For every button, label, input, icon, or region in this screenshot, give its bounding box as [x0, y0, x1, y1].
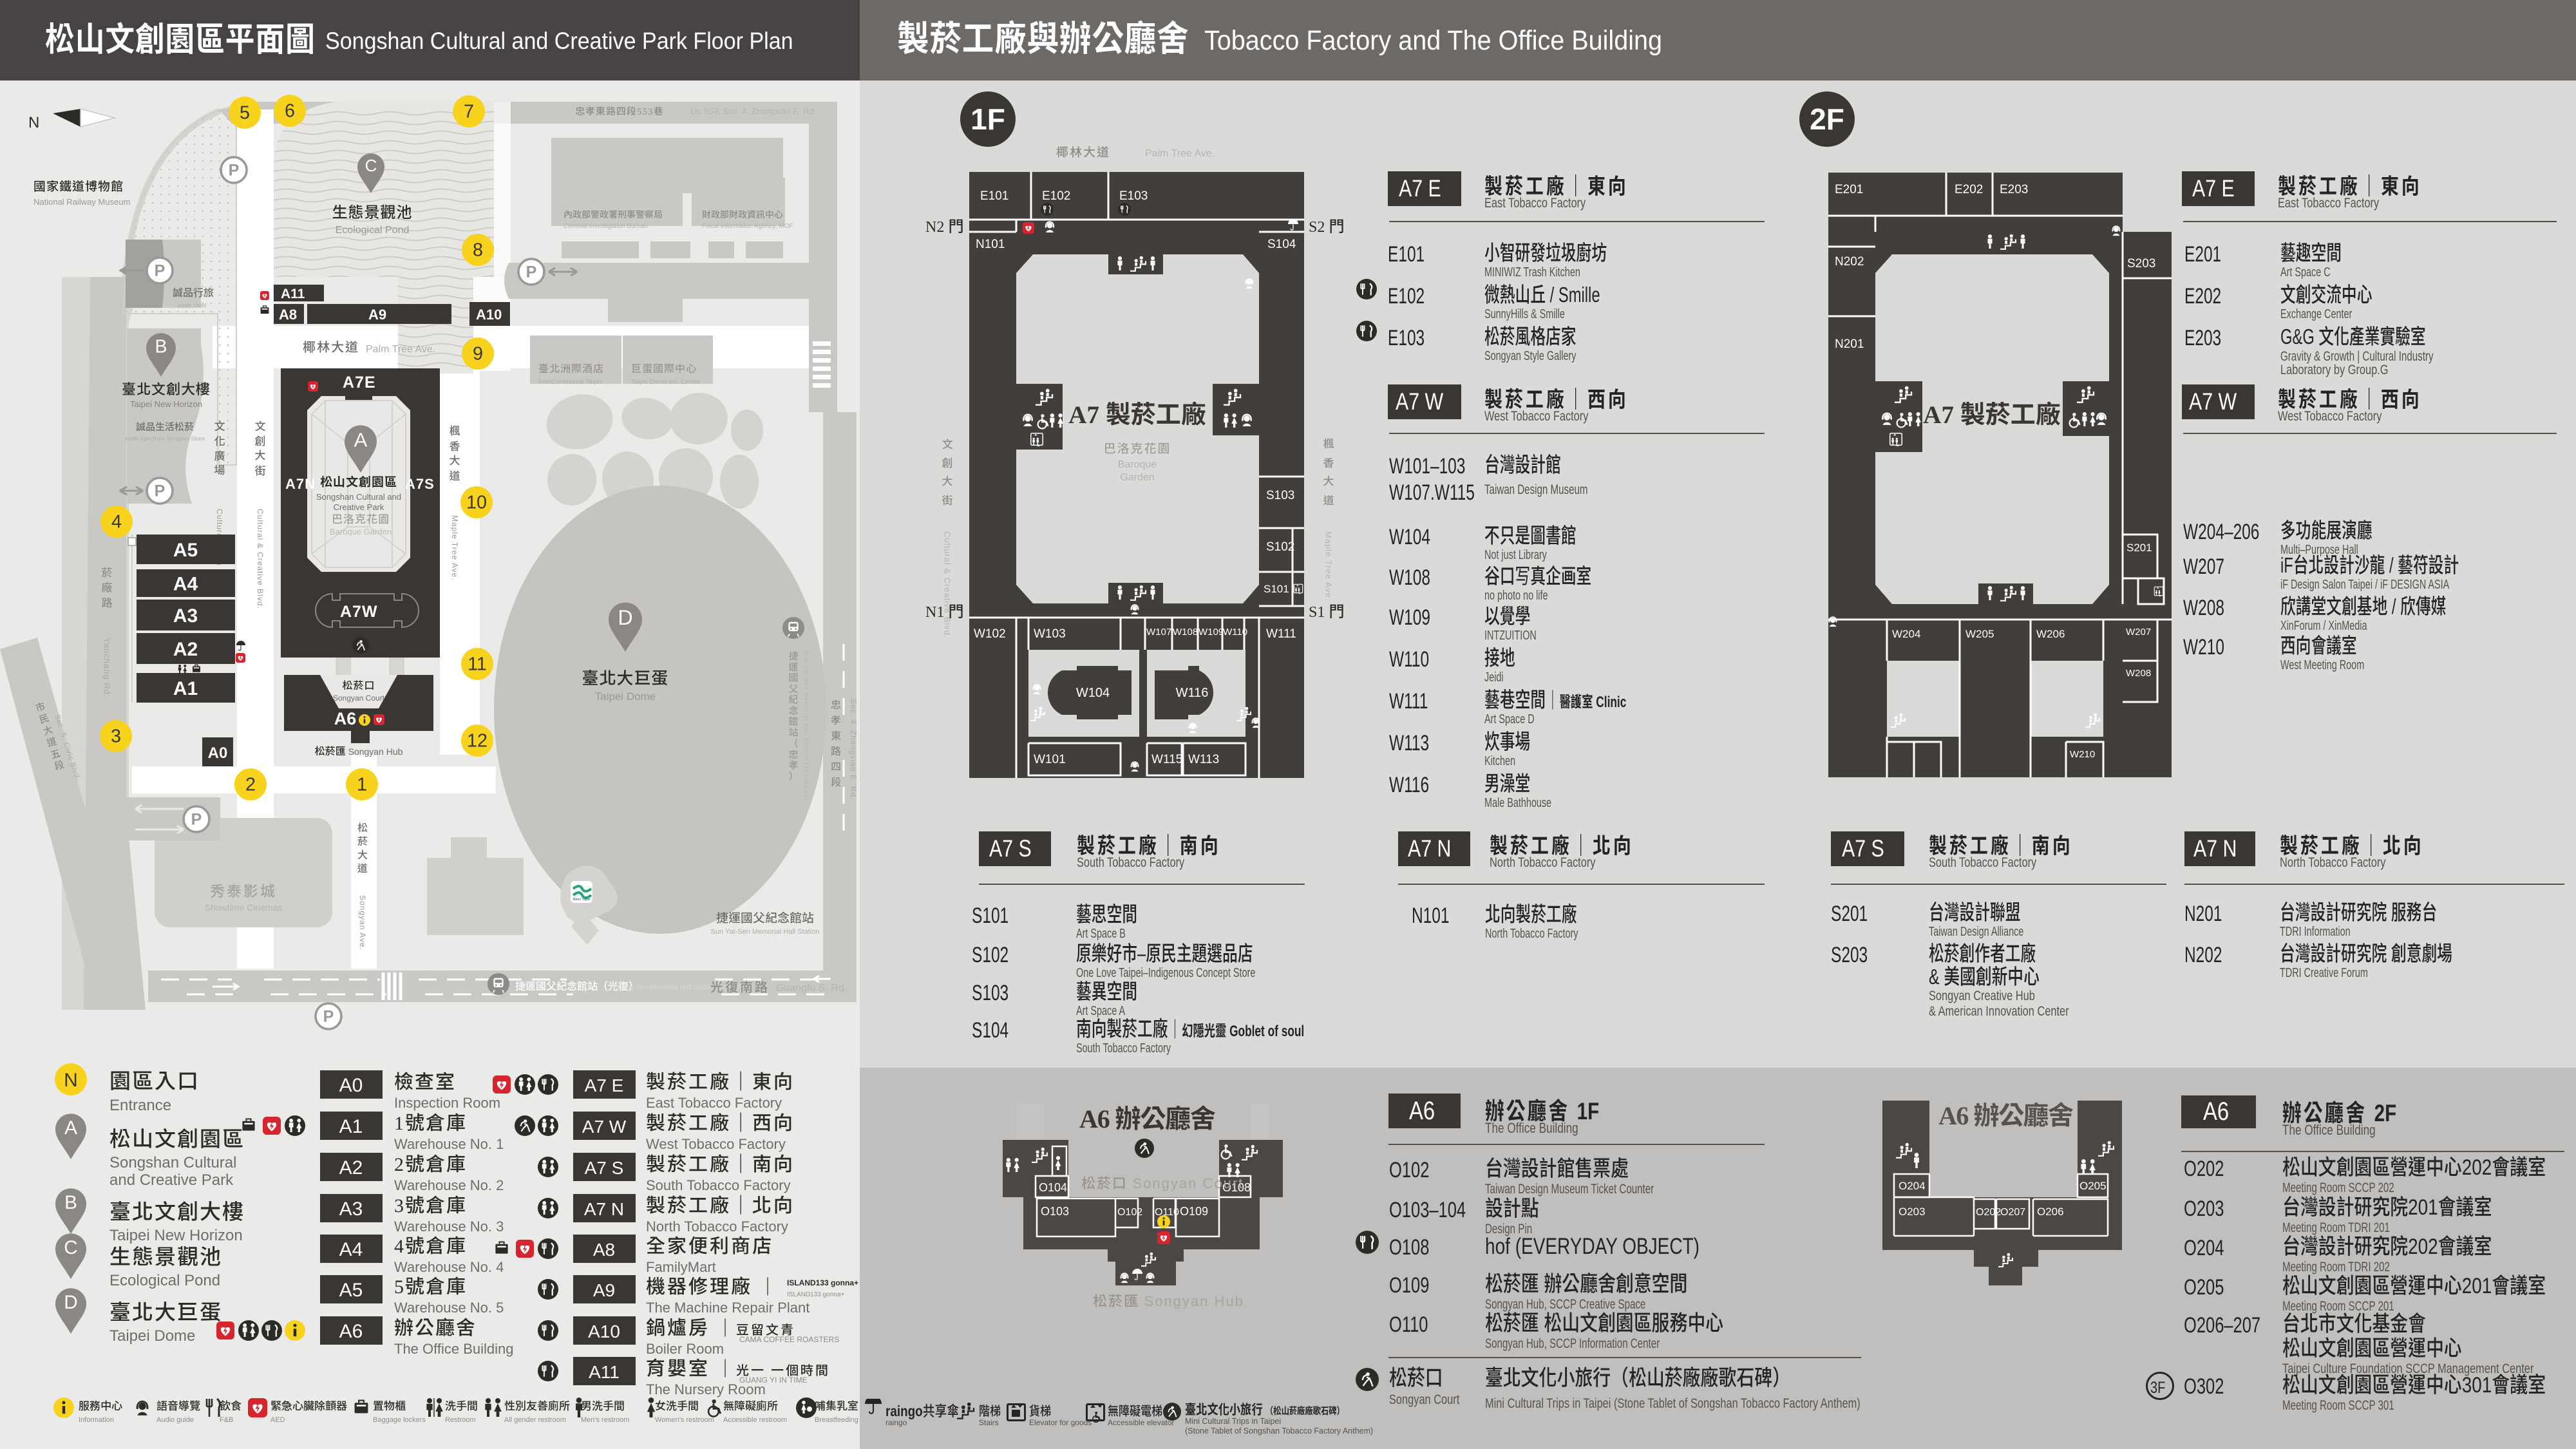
svg-text:Taipei New Horizon: Taipei New Horizon — [130, 399, 202, 409]
svg-text:N: N — [64, 1070, 78, 1091]
svg-text:W107: W107 — [1146, 627, 1171, 638]
svg-text:製菸工廠｜東向: 製菸工廠｜東向 — [646, 1066, 795, 1094]
svg-text:國家鐵道博物館: 國家鐵道博物館 — [33, 177, 124, 194]
svg-text:內政部警政署刑事警察局: 內政部警政署刑事警察局 — [563, 208, 663, 221]
svg-text:誠品行旅: 誠品行旅 — [173, 284, 214, 299]
svg-text:A1: A1 — [339, 1116, 363, 1137]
svg-text:P: P — [229, 161, 240, 179]
svg-text:洗手間: 洗手間 — [445, 1397, 478, 1413]
svg-text:Baggage lockers: Baggage lockers — [373, 1416, 426, 1424]
svg-text:A7N: A7N — [285, 476, 316, 492]
svg-text:辦公廳舍: 辦公廳舍 — [394, 1312, 477, 1340]
svg-text:A10: A10 — [476, 307, 502, 323]
svg-text:N: N — [28, 114, 39, 131]
svg-text:P: P — [155, 261, 166, 279]
svg-text:3: 3 — [111, 726, 121, 747]
svg-text:W113: W113 — [1188, 753, 1219, 766]
svg-text:N101: N101 — [976, 238, 1005, 251]
svg-text:ISLAND133 gonna+: ISLAND133 gonna+ — [787, 1278, 858, 1287]
svg-text:E103: E103 — [1119, 189, 1148, 203]
svg-text:S101: S101 — [1264, 583, 1289, 595]
svg-text:A2: A2 — [339, 1157, 363, 1179]
svg-text:Sun Yat-Sen Memorial Hall Stat: Sun Yat-Sen Memorial Hall Station — [711, 928, 820, 936]
svg-text:W207: W207 — [2126, 627, 2151, 638]
svg-text:A7 E: A7 E — [585, 1075, 624, 1095]
svg-text:松菸口: 松菸口 — [342, 677, 375, 692]
svg-text:A11: A11 — [589, 1362, 620, 1382]
svg-text:A1: A1 — [173, 678, 198, 699]
svg-text:E201: E201 — [1835, 183, 1863, 196]
svg-text:W102: W102 — [974, 627, 1006, 641]
svg-text:Women's restroom: Women's restroom — [655, 1416, 714, 1424]
svg-text:椰林大道: 椰林大道 — [1056, 143, 1110, 160]
svg-text:A2: A2 — [173, 639, 198, 660]
svg-text:製菸工廠｜北向: 製菸工廠｜北向 — [646, 1189, 795, 1218]
svg-text:5號倉庫: 5號倉庫 — [394, 1271, 467, 1299]
svg-text:12: 12 — [467, 731, 488, 752]
svg-text:Criminal Investigation Bureau: Criminal Investigation Bureau — [563, 223, 648, 230]
svg-text:Ecological Pond: Ecological Pond — [336, 225, 410, 236]
svg-text:A11: A11 — [281, 287, 305, 301]
svg-text:N201: N201 — [1835, 337, 1864, 351]
svg-text:Breastfeeding room: Breastfeeding room — [815, 1416, 860, 1424]
svg-text:Palm Tree Ave.: Palm Tree Ave. — [1145, 148, 1215, 159]
svg-text:N202: N202 — [1835, 255, 1864, 269]
svg-text:松菸大道: 松菸大道 — [355, 822, 370, 876]
svg-text:W108: W108 — [1173, 627, 1198, 638]
svg-text:Songyan Court: Songyan Court — [333, 694, 385, 703]
svg-text:哺集乳室: 哺集乳室 — [815, 1397, 858, 1413]
svg-text:機器修理廠 ｜: 機器修理廠 ｜ — [646, 1271, 779, 1299]
svg-text:The Nursery Room: The Nursery Room — [646, 1381, 766, 1397]
svg-text:Cultural & Creative Blvd.: Cultural & Creative Blvd. — [943, 531, 952, 639]
svg-text:A7 製菸工廠: A7 製菸工廠 — [1068, 395, 1206, 431]
svg-text:W206: W206 — [2036, 628, 2065, 640]
svg-text:O204: O204 — [1899, 1180, 1926, 1192]
svg-text:S1 門: S1 門 — [1309, 599, 1344, 621]
svg-text:Maple Tree Ave.: Maple Tree Ave. — [1324, 531, 1334, 601]
svg-text:A6: A6 — [339, 1321, 363, 1342]
svg-text:P: P — [155, 482, 166, 500]
svg-text:9: 9 — [473, 344, 483, 365]
svg-text:The Office Building: The Office Building — [394, 1341, 513, 1357]
svg-text:All gender restroom: All gender restroom — [504, 1416, 566, 1424]
svg-text:W103: W103 — [1034, 627, 1066, 641]
svg-text:eslite Spectrum Songyan Store: eslite Spectrum Songyan Store — [125, 435, 205, 442]
svg-text:Restroom: Restroom — [445, 1416, 476, 1424]
svg-text:Cultural & Creative Blvd.: Cultural & Creative Blvd. — [256, 509, 265, 609]
svg-text:National Railway Museum: National Railway Museum — [33, 197, 130, 207]
svg-text:Taipei Dome Intl. Center: Taipei Dome Intl. Center — [631, 379, 701, 386]
svg-text:F&B: F&B — [220, 1416, 233, 1424]
svg-text:松菸口 Songyan Court: 松菸口 Songyan Court — [1081, 1172, 1244, 1193]
svg-text:A0: A0 — [208, 744, 228, 762]
svg-text:緊急心臟除顫器: 緊急心臟除顫器 — [270, 1397, 347, 1413]
svg-text:Songshan Cultural: Songshan Cultural — [109, 1154, 236, 1171]
svg-text:4號倉庫: 4號倉庫 — [394, 1230, 467, 1258]
svg-text:A7 S: A7 S — [585, 1158, 624, 1178]
svg-text:Information: Information — [79, 1416, 114, 1424]
svg-text:園區入口: 園區入口 — [109, 1064, 200, 1095]
svg-text:文創大街: 文創大街 — [252, 420, 269, 479]
svg-text:菸廠路: 菸廠路 — [99, 567, 115, 611]
svg-text:性別友善廁所: 性別友善廁所 — [504, 1397, 570, 1413]
svg-text:2號倉庫: 2號倉庫 — [394, 1148, 467, 1177]
svg-text:臺北文創大樓: 臺北文創大樓 — [122, 378, 211, 399]
svg-text:Men's restroom: Men's restroom — [581, 1416, 629, 1424]
svg-text:A7W: A7W — [340, 603, 378, 621]
svg-text:1: 1 — [357, 775, 367, 795]
svg-text:E101: E101 — [980, 189, 1009, 203]
svg-text:文創大街: 文創大街 — [940, 438, 956, 513]
svg-text:2: 2 — [245, 775, 256, 795]
svg-text:O109: O109 — [1180, 1205, 1208, 1218]
svg-text:全家便利商店: 全家便利商店 — [646, 1230, 773, 1258]
svg-text:巨蛋國際中心: 巨蛋國際中心 — [631, 360, 697, 375]
svg-text:8: 8 — [473, 240, 483, 261]
svg-text:A7E: A7E — [343, 374, 376, 392]
svg-text:S203: S203 — [2127, 257, 2155, 270]
svg-text:捷運國父紀念館站: 捷運國父紀念館站 — [716, 909, 814, 926]
svg-text:N1 門: N1 門 — [925, 599, 963, 621]
svg-text:文化廣場: 文化廣場 — [212, 420, 228, 479]
svg-text:A3: A3 — [173, 605, 198, 627]
svg-text:Yanchang Rd.: Yanchang Rd. — [102, 638, 112, 697]
svg-text:Baroque: Baroque — [1118, 459, 1157, 470]
svg-text:A8: A8 — [593, 1240, 615, 1260]
svg-text:楓香大道: 楓香大道 — [1321, 438, 1337, 513]
svg-text:A9: A9 — [368, 307, 386, 323]
svg-text:C: C — [365, 156, 377, 175]
svg-text:Metro Taipei: Metro Taipei — [573, 898, 590, 902]
svg-text:A7S: A7S — [405, 476, 435, 492]
svg-text:O103: O103 — [1041, 1205, 1069, 1218]
svg-text:Accessible restroom: Accessible restroom — [723, 1416, 787, 1424]
svg-text:P: P — [526, 263, 537, 281]
svg-text:W101: W101 — [1034, 753, 1066, 766]
svg-text:10: 10 — [466, 493, 487, 513]
svg-text:A9: A9 — [593, 1280, 615, 1300]
svg-text:語音導覽: 語音導覽 — [156, 1397, 200, 1413]
svg-text:製菸工廠｜西向: 製菸工廠｜西向 — [646, 1107, 795, 1135]
svg-text:A8: A8 — [279, 307, 297, 323]
svg-text:Sun Yat-Sen Memorial Hall Stat: Sun Yat-Sen Memorial Hall Station (Zhong… — [803, 650, 810, 801]
svg-text:CAMA COFFEE ROASTERS: CAMA COFFEE ROASTERS — [739, 1335, 839, 1344]
svg-text:W205: W205 — [1965, 628, 1994, 640]
svg-text:O102: O102 — [1117, 1207, 1142, 1218]
svg-text:O207: O207 — [2000, 1207, 2025, 1218]
svg-text:松山文創園區: 松山文創園區 — [320, 473, 397, 490]
svg-text:楓香大道: 楓香大道 — [447, 425, 463, 484]
svg-text:O203: O203 — [1899, 1206, 1926, 1218]
svg-text:生態景觀池: 生態景觀池 — [109, 1240, 222, 1271]
svg-text:W115: W115 — [1151, 753, 1182, 766]
svg-text:S104: S104 — [1267, 238, 1296, 251]
svg-text:誠品生活松菸: 誠品生活松菸 — [136, 420, 194, 433]
svg-text:臺北文創大樓: 臺北文創大樓 — [109, 1195, 245, 1226]
svg-text:秀泰影城: 秀泰影城 — [210, 879, 277, 901]
svg-text:A4: A4 — [173, 574, 198, 595]
svg-text:D: D — [618, 606, 632, 629]
svg-text:男洗手間: 男洗手間 — [581, 1397, 625, 1413]
svg-text:S201: S201 — [2126, 542, 2152, 554]
svg-text:W204: W204 — [1892, 628, 1920, 640]
svg-text:生態景觀池: 生態景觀池 — [332, 200, 413, 222]
svg-text:Ln. 553, Sec. 4, Zhongxiao E.: Ln. 553, Sec. 4, Zhongxiao E. Rd. — [690, 106, 816, 116]
svg-text:A7 製菸工廠: A7 製菸工廠 — [1923, 395, 2060, 431]
svg-text:W210: W210 — [2070, 749, 2095, 760]
svg-text:Ecological Pond: Ecological Pond — [109, 1272, 220, 1289]
svg-text:A10: A10 — [588, 1321, 620, 1341]
svg-text:eslite Hotel: eslite Hotel — [178, 302, 207, 308]
svg-text:Baroque Garden: Baroque Garden — [330, 527, 392, 536]
svg-text:Songyan Ave.: Songyan Ave. — [358, 895, 367, 951]
svg-text:11: 11 — [468, 654, 487, 675]
svg-text:4: 4 — [111, 512, 122, 533]
svg-text:A7 W: A7 W — [582, 1117, 627, 1137]
svg-text:Audio guide: Audio guide — [156, 1416, 194, 1424]
svg-text:B: B — [155, 337, 167, 357]
svg-text:飲食: 飲食 — [220, 1397, 241, 1413]
svg-text:3號倉庫: 3號倉庫 — [394, 1189, 467, 1218]
svg-text:E102: E102 — [1042, 189, 1070, 203]
svg-text:A: A — [354, 429, 368, 451]
svg-text:O206: O206 — [2037, 1206, 2064, 1218]
svg-text:松菸匯 Songyan Hub: 松菸匯 Songyan Hub — [1093, 1290, 1244, 1311]
svg-text:Songshan Cultural and: Songshan Cultural and — [316, 492, 401, 502]
svg-text:A4: A4 — [339, 1239, 363, 1260]
svg-text:Fiscal Information Agency, MOF: Fiscal Information Agency, MOF — [702, 223, 793, 230]
svg-text:椰林大道: 椰林大道 — [303, 337, 359, 355]
svg-text:and Creative Park: and Creative Park — [109, 1171, 234, 1189]
svg-text:N2 門: N2 門 — [925, 214, 963, 236]
svg-text:Taipei Dome: Taipei Dome — [595, 690, 656, 703]
svg-text:1號倉庫: 1號倉庫 — [394, 1107, 467, 1135]
svg-text:臺北大巨蛋: 臺北大巨蛋 — [582, 665, 668, 689]
svg-text:置物櫃: 置物櫃 — [373, 1397, 406, 1413]
svg-text:C: C — [64, 1237, 78, 1258]
svg-text:S102: S102 — [1266, 540, 1294, 554]
svg-text:巴洛克花園: 巴洛克花園 — [332, 510, 390, 526]
svg-text:6: 6 — [285, 101, 295, 122]
svg-text:O205: O205 — [2079, 1180, 2107, 1192]
svg-text:Showtime Cinemas: Showtime Cinemas — [205, 902, 283, 913]
svg-text:A: A — [64, 1117, 77, 1139]
svg-text:W104: W104 — [1076, 686, 1110, 700]
svg-text:E203: E203 — [2000, 183, 2028, 196]
svg-text:A5: A5 — [339, 1280, 363, 1301]
svg-text:忠孝東路四段553巷: 忠孝東路四段553巷 — [575, 104, 664, 118]
svg-text:Guangfu S. Rd.: Guangfu S. Rd. — [776, 983, 847, 994]
svg-text:女洗手間: 女洗手間 — [655, 1397, 699, 1413]
svg-text:Garden: Garden — [1120, 472, 1154, 483]
svg-text:Sec. 4, Zhongxiao E. Rd.: Sec. 4, Zhongxiao E. Rd. — [849, 699, 858, 800]
svg-text:服務中心: 服務中心 — [79, 1397, 122, 1413]
svg-text:E202: E202 — [1955, 183, 1983, 196]
svg-text:InterContinental Taipei: InterContinental Taipei — [538, 379, 602, 386]
svg-text:臺北大巨蛋: 臺北大巨蛋 — [109, 1295, 222, 1326]
svg-text:W208: W208 — [2126, 668, 2151, 679]
svg-text:忠孝東路四段: 忠孝東路四段 — [828, 699, 844, 791]
svg-text:ISLAND133 gonna+: ISLAND133 gonna+ — [787, 1291, 844, 1298]
svg-text:A6 辦公廳舍: A6 辦公廳舍 — [1938, 1095, 2074, 1132]
svg-text:A6: A6 — [334, 709, 357, 728]
svg-text:財政部財政資訊中心: 財政部財政資訊中心 — [702, 208, 783, 221]
svg-text:W116: W116 — [1176, 686, 1209, 700]
svg-text:A0: A0 — [339, 1075, 363, 1096]
svg-text:B: B — [64, 1192, 77, 1213]
svg-text:7: 7 — [464, 102, 474, 122]
svg-text:檢查室: 檢查室 — [394, 1066, 456, 1094]
svg-text:松菸匯 Songyan Hub: 松菸匯 Songyan Hub — [315, 743, 403, 758]
svg-text:P: P — [323, 1007, 334, 1025]
svg-text:製菸工廠｜南向: 製菸工廠｜南向 — [646, 1148, 795, 1177]
svg-text:松山文創園區: 松山文創園區 — [109, 1122, 245, 1153]
svg-text:臺北洲際酒店: 臺北洲際酒店 — [538, 360, 604, 375]
svg-text:A3: A3 — [339, 1198, 363, 1220]
svg-text:Maple Tree Ave.: Maple Tree Ave. — [450, 515, 459, 581]
svg-text:W109: W109 — [1198, 627, 1224, 638]
svg-text:S2 門: S2 門 — [1309, 214, 1344, 236]
svg-text:W110: W110 — [1223, 627, 1247, 638]
svg-text:5: 5 — [240, 103, 250, 124]
svg-text:O202: O202 — [1976, 1207, 2001, 1218]
svg-text:無障礙廁所: 無障礙廁所 — [723, 1397, 778, 1413]
svg-text:Entrance: Entrance — [109, 1097, 171, 1114]
svg-text:W111: W111 — [1266, 627, 1296, 641]
svg-text:AED: AED — [270, 1416, 285, 1424]
svg-text:P: P — [191, 810, 202, 828]
svg-text:S103: S103 — [1266, 489, 1294, 502]
svg-text:Palm Tree Ave.: Palm Tree Ave. — [366, 344, 435, 355]
svg-text:A6 辦公廳舍: A6 辦公廳舍 — [1079, 1098, 1216, 1135]
svg-text:A5: A5 — [173, 540, 198, 561]
svg-text:光復南路: 光復南路 — [710, 977, 770, 996]
svg-text:A7 N: A7 N — [584, 1199, 624, 1219]
svg-text:O104: O104 — [1039, 1181, 1067, 1194]
svg-text:D: D — [64, 1292, 78, 1313]
svg-text:巴洛克花園: 巴洛克花園 — [1103, 439, 1171, 457]
svg-text:Taipei Dome: Taipei Dome — [109, 1327, 195, 1345]
svg-text:捷運國父紀念館站（忠孝）: 捷運國父紀念館站（忠孝） — [787, 650, 800, 782]
